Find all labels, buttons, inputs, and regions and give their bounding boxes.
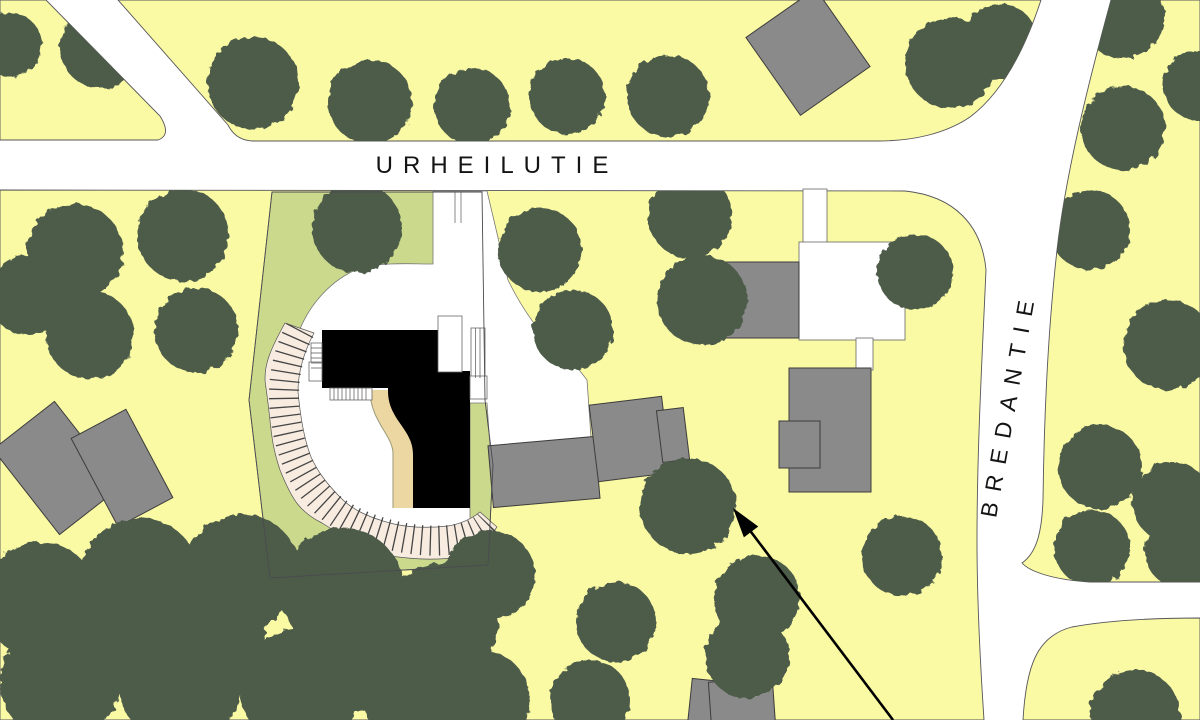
tree xyxy=(40,580,150,690)
tree xyxy=(576,582,656,662)
tree xyxy=(1058,425,1142,509)
tree xyxy=(498,208,582,292)
tree xyxy=(445,530,535,620)
tree xyxy=(137,189,229,281)
tree xyxy=(1050,190,1130,270)
tree xyxy=(529,58,605,134)
tree xyxy=(640,458,736,554)
tree xyxy=(648,174,732,258)
balcony-strip xyxy=(471,328,485,378)
tree xyxy=(328,60,412,144)
tree xyxy=(533,290,613,370)
street-label-bredantie: BREDANTIE xyxy=(975,288,1041,520)
tree xyxy=(154,288,238,372)
tree xyxy=(1081,86,1165,170)
tree xyxy=(877,234,953,310)
building xyxy=(656,408,689,463)
tree xyxy=(862,516,942,596)
building xyxy=(488,436,600,507)
building xyxy=(779,421,820,468)
tree xyxy=(657,255,747,345)
tree xyxy=(705,614,789,698)
tree xyxy=(145,572,265,692)
tree xyxy=(962,4,1038,80)
tree xyxy=(1054,510,1130,586)
street-label-urheilutie: URHEILUTIE xyxy=(376,152,619,179)
tree xyxy=(60,8,140,88)
tree xyxy=(207,37,299,129)
tree xyxy=(627,55,709,137)
porch-west xyxy=(309,362,322,381)
entry-notch xyxy=(438,316,462,372)
site-plan-map: URHEILUTIE BREDANTIE xyxy=(0,0,1200,720)
tree xyxy=(312,183,402,273)
tree xyxy=(295,592,415,712)
tree xyxy=(434,68,510,144)
map-canvas: URHEILUTIE BREDANTIE xyxy=(0,0,1200,720)
